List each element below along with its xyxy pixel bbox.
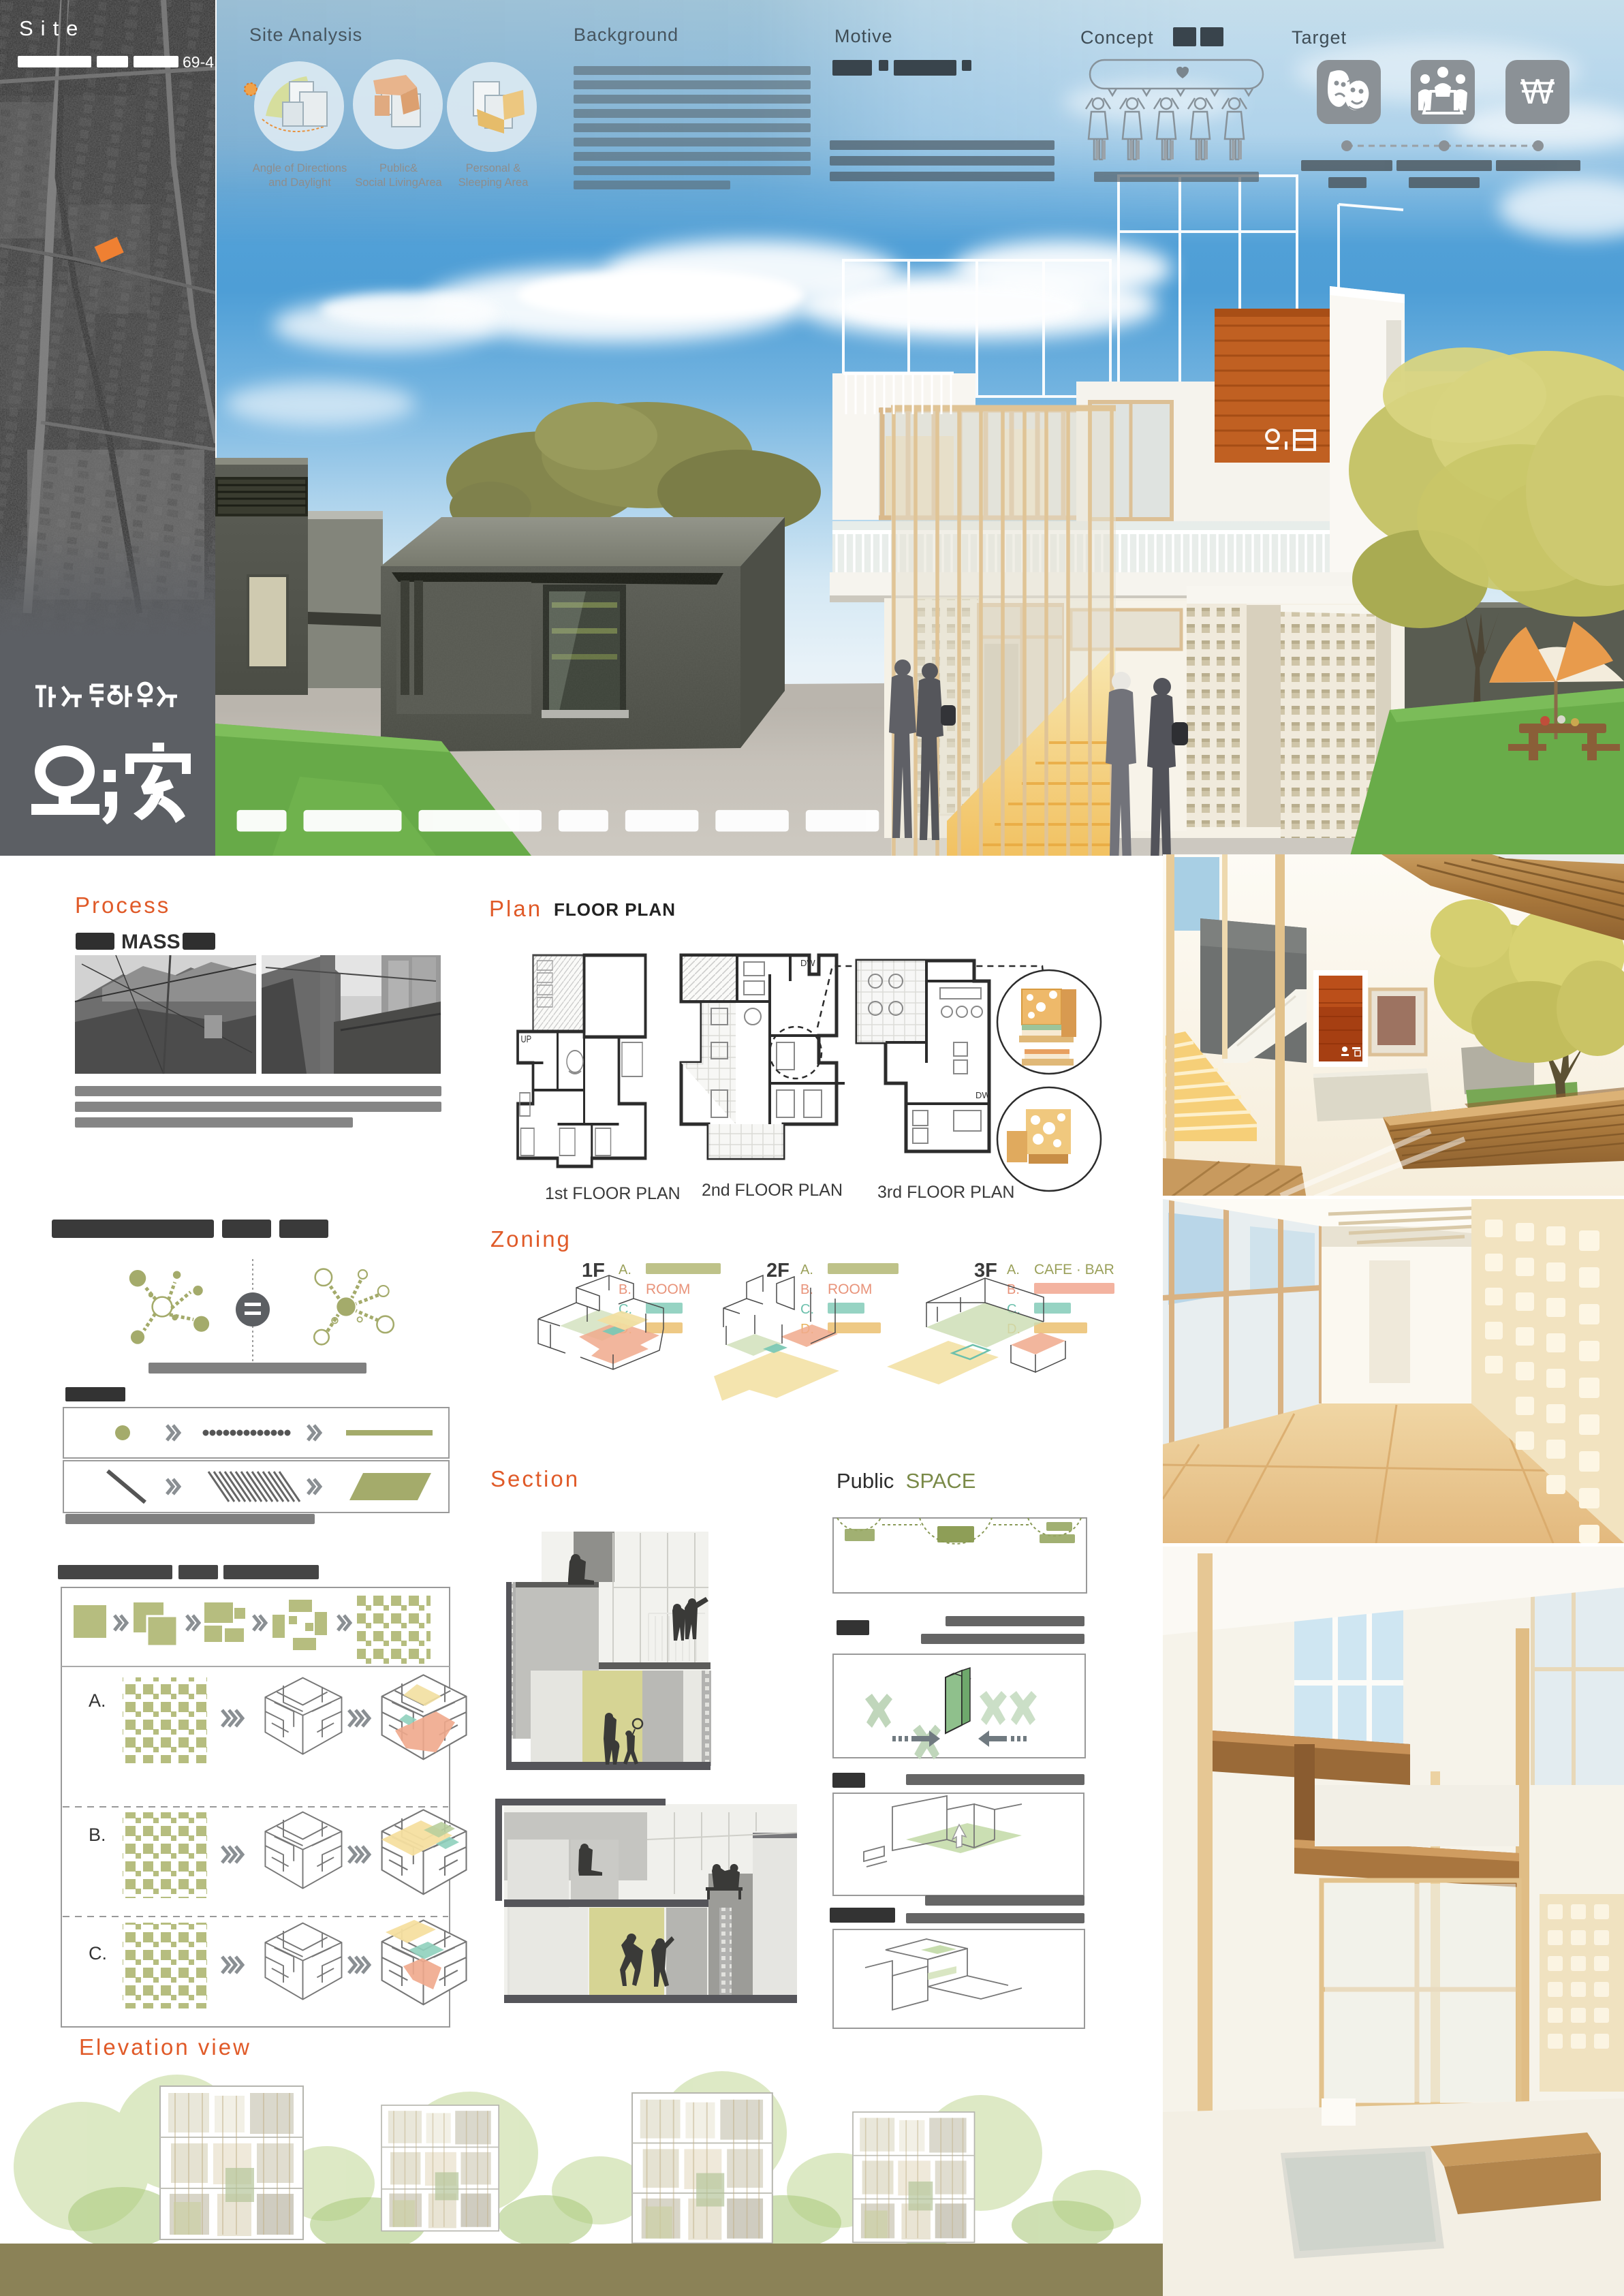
svg-text:Site: Site	[19, 16, 85, 40]
svg-text:1st FLOOR PLAN: 1st FLOOR PLAN	[545, 1184, 681, 1203]
svg-text:A.: A.	[1007, 1262, 1020, 1277]
svg-text:Site Analysis: Site Analysis	[249, 25, 362, 45]
svg-text:ROOM: ROOM	[828, 1282, 872, 1297]
svg-text:C.: C.	[89, 1943, 107, 1964]
svg-text:Sleeping Area: Sleeping Area	[458, 176, 529, 189]
svg-text:2F: 2F	[766, 1260, 790, 1282]
svg-text:Concept: Concept	[1080, 27, 1154, 48]
svg-text:2nd FLOOR PLAN: 2nd FLOOR PLAN	[702, 1181, 843, 1200]
svg-text:B.: B.	[619, 1282, 631, 1297]
svg-text:A.: A.	[800, 1262, 813, 1277]
svg-text:MASS: MASS	[121, 931, 181, 953]
svg-text:69-4: 69-4	[183, 53, 214, 71]
svg-text:B.: B.	[1007, 1282, 1020, 1297]
svg-text:Social LivingArea: Social LivingArea	[355, 176, 442, 189]
svg-text:B.: B.	[800, 1282, 813, 1297]
svg-text:DW: DW	[800, 958, 815, 968]
svg-text:Personal &: Personal &	[466, 162, 521, 174]
svg-text:DW: DW	[975, 1090, 990, 1100]
svg-text:and Daylight: and Daylight	[268, 176, 331, 189]
svg-text:A.: A.	[89, 1690, 106, 1711]
svg-text:Target: Target	[1292, 27, 1347, 48]
svg-text:Motive: Motive	[834, 26, 893, 46]
svg-text:CAFE · BAR: CAFE · BAR	[1034, 1262, 1114, 1277]
svg-text:Background: Background	[574, 25, 678, 45]
svg-text:UP: UP	[521, 1033, 532, 1044]
svg-text:ROOM: ROOM	[646, 1282, 690, 1297]
svg-text:C.: C.	[800, 1302, 814, 1317]
svg-text:Angle of Directions: Angle of Directions	[253, 162, 347, 174]
svg-text:A.: A.	[619, 1262, 631, 1277]
svg-text:B.: B.	[89, 1825, 106, 1845]
svg-text:3rd FLOOR PLAN: 3rd FLOOR PLAN	[877, 1183, 1014, 1202]
svg-text:Public&: Public&	[379, 162, 418, 174]
